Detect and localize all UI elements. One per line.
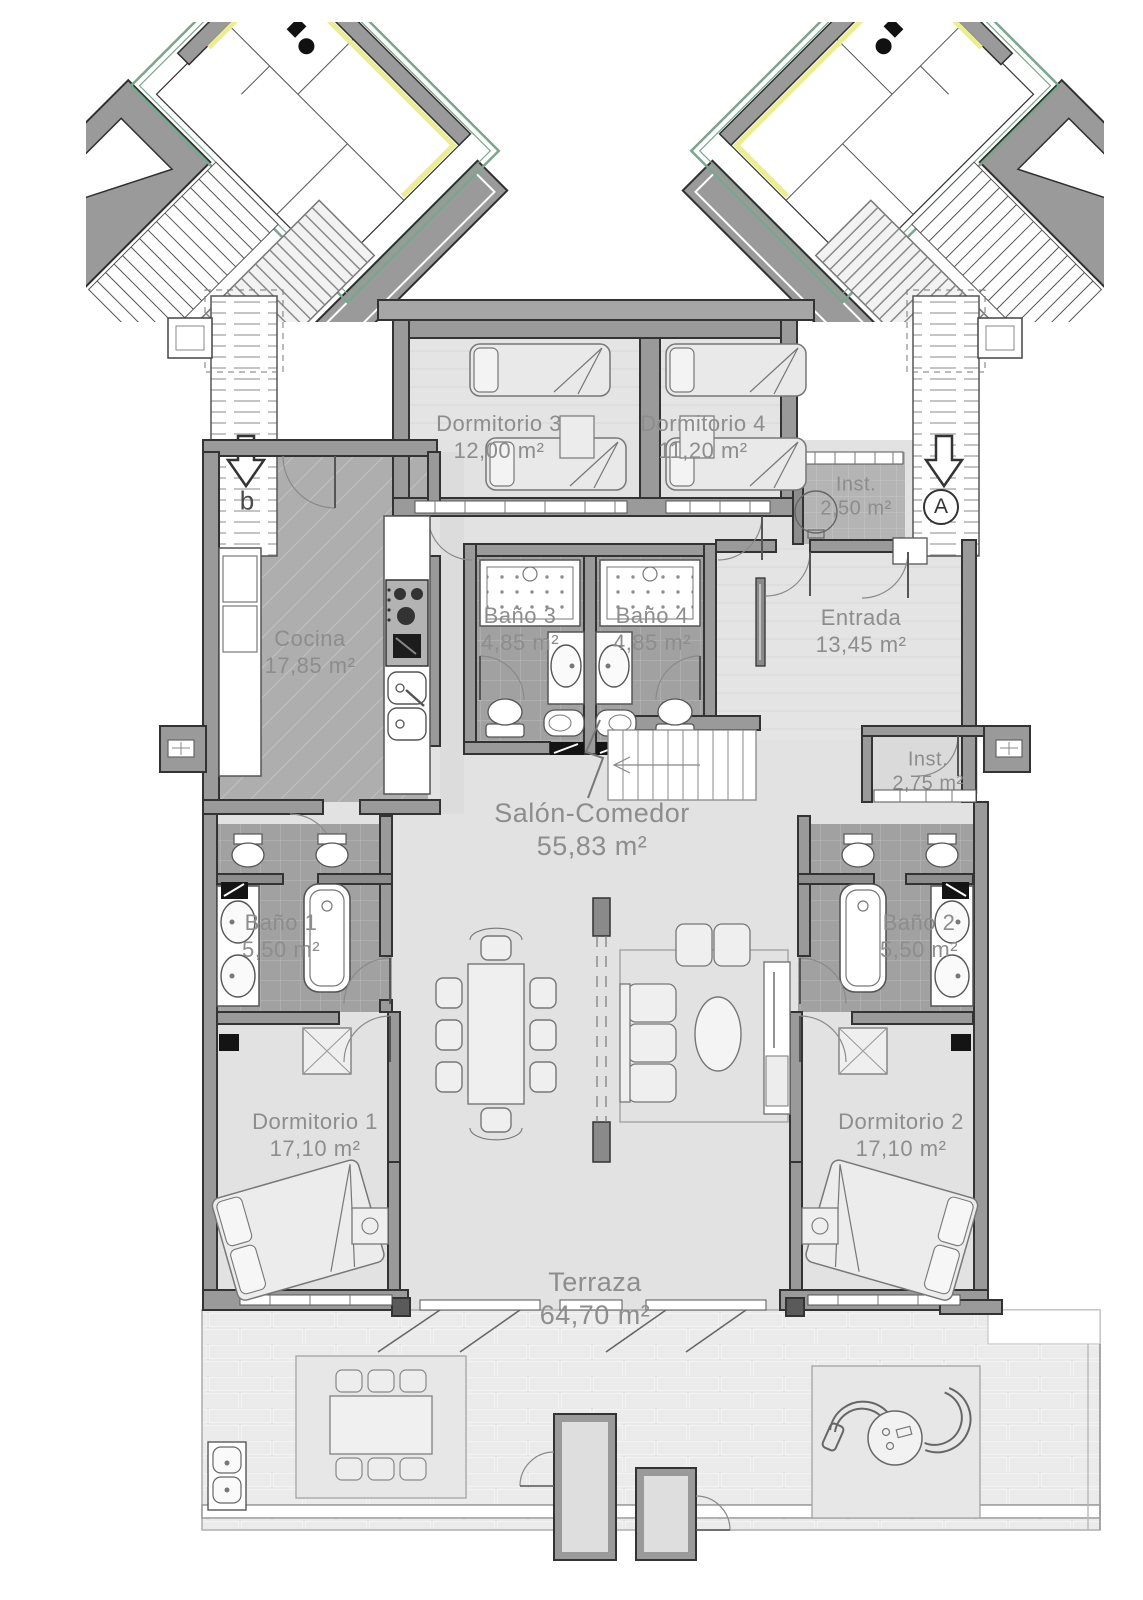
room-label-bano-1: Baño 1 5,50 m² bbox=[242, 910, 320, 964]
nightstand bbox=[560, 416, 594, 458]
room-name: Inst. bbox=[892, 748, 963, 772]
room-name: Dormitorio 1 bbox=[252, 1109, 378, 1136]
room-name: Baño 4 bbox=[613, 603, 691, 630]
room-name: Dormitorio 4 bbox=[640, 411, 766, 438]
room-name: Baño 3 bbox=[481, 603, 559, 630]
room-area: 55,83 m² bbox=[494, 830, 690, 863]
room-label-terraza: Terraza 64,70 m² bbox=[540, 1266, 651, 1332]
room-area: 17,85 m² bbox=[265, 653, 356, 680]
room-name: Inst. bbox=[820, 473, 891, 497]
stair-label-A: A bbox=[934, 495, 948, 519]
room-name: Terraza bbox=[540, 1266, 651, 1299]
room-label-bano-3: Baño 3 4,85 m² bbox=[481, 603, 559, 657]
terrace-dining-set bbox=[296, 1356, 466, 1498]
room-label-cocina: Cocina 17,85 m² bbox=[265, 626, 356, 680]
room-name: Cocina bbox=[265, 626, 356, 653]
room-area: 11,20 m² bbox=[640, 438, 766, 465]
room-label-dormitorio-4: Dormitorio 4 11,20 m² bbox=[640, 411, 766, 465]
room-name: Baño 2 bbox=[880, 910, 958, 937]
room-area: 13,45 m² bbox=[816, 632, 907, 659]
stair-label-b: b bbox=[240, 486, 254, 517]
staircase bbox=[586, 720, 756, 800]
terrace-sink-unit bbox=[208, 1442, 246, 1510]
room-label-bano-2: Baño 2 5,50 m² bbox=[880, 910, 958, 964]
room-name: Entrada bbox=[816, 605, 907, 632]
room-area: 5,50 m² bbox=[880, 937, 958, 964]
room-name: Baño 1 bbox=[242, 910, 320, 937]
room-area: 4,85 m² bbox=[613, 630, 691, 657]
floor-plan-canvas: Dormitorio 3 12,00 m² Dormitorio 4 11,20… bbox=[0, 0, 1143, 1600]
room-label-dormitorio-3: Dormitorio 3 12,00 m² bbox=[436, 411, 562, 465]
room-area: 2,50 m² bbox=[820, 497, 891, 521]
room-label-inst-mid: Inst. 2,75 m² bbox=[892, 748, 963, 797]
room-area: 2,75 m² bbox=[892, 772, 963, 796]
terrace-lounge-set bbox=[812, 1366, 982, 1518]
room-label-salon-comedor: Salón-Comedor 55,83 m² bbox=[494, 797, 690, 863]
room-area: 4,85 m² bbox=[481, 630, 559, 657]
room-area: 17,10 m² bbox=[252, 1136, 378, 1163]
entry-step bbox=[893, 538, 927, 564]
room-label-inst-top: Inst. 2,50 m² bbox=[820, 473, 891, 522]
room-label-entrada: Entrada 13,45 m² bbox=[816, 605, 907, 659]
room-area: 12,00 m² bbox=[436, 438, 562, 465]
room-name: Dormitorio 2 bbox=[838, 1109, 964, 1136]
room-label-bano-4: Baño 4 4,85 m² bbox=[613, 603, 691, 657]
room-label-dormitorio-1: Dormitorio 1 17,10 m² bbox=[252, 1109, 378, 1163]
room-area: 17,10 m² bbox=[838, 1136, 964, 1163]
room-area: 5,50 m² bbox=[242, 937, 320, 964]
room-label-dormitorio-2: Dormitorio 2 17,10 m² bbox=[838, 1109, 964, 1163]
kitchen-stove bbox=[386, 580, 428, 666]
room-name: Salón-Comedor bbox=[494, 797, 690, 830]
room-area: 64,70 m² bbox=[540, 1299, 651, 1332]
room-name: Dormitorio 3 bbox=[436, 411, 562, 438]
